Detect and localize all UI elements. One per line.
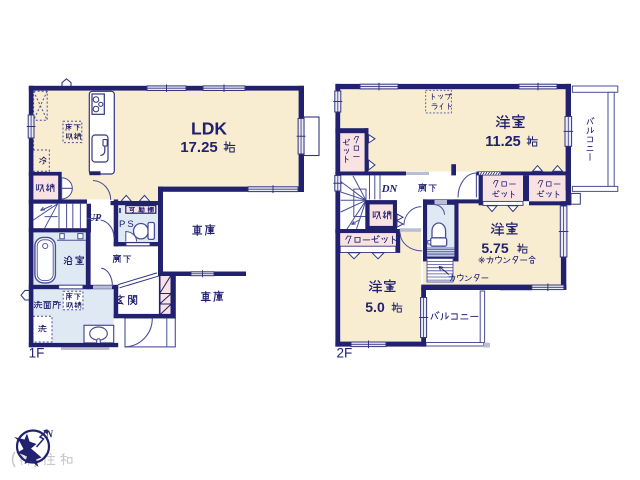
svg-text:11.25: 11.25	[485, 134, 521, 150]
svg-text:2F: 2F	[337, 346, 353, 361]
svg-text:5.0: 5.0	[365, 299, 385, 315]
svg-text:1F: 1F	[29, 346, 45, 361]
svg-text:LDK: LDK	[191, 119, 227, 139]
svg-text:5.75: 5.75	[481, 240, 508, 256]
svg-text:N: N	[45, 430, 54, 441]
svg-text:DN: DN	[381, 183, 399, 195]
svg-text:17.25: 17.25	[180, 139, 218, 156]
svg-text:PS: PS	[119, 219, 136, 230]
